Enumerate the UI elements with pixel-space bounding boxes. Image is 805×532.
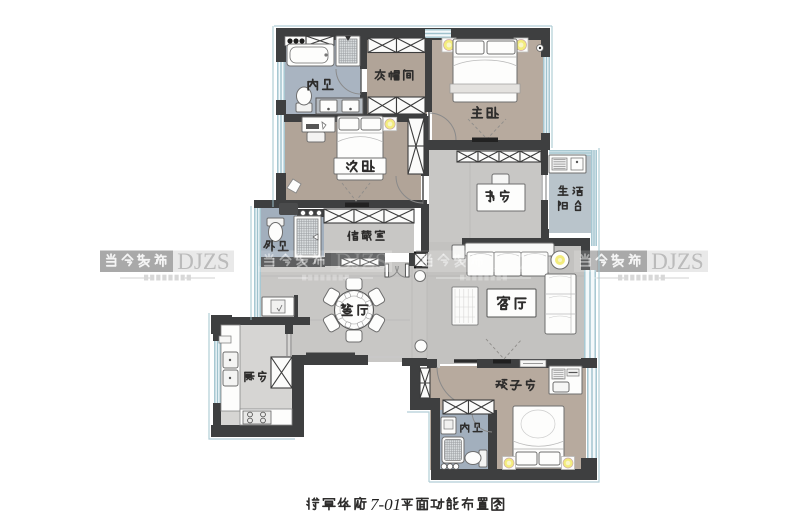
svg-text:DJZS: DJZS: [651, 249, 703, 274]
svg-text:7-01: 7-01: [370, 495, 401, 514]
svg-text:DJZS: DJZS: [177, 249, 229, 274]
svg-text:DJZS: DJZS: [335, 249, 387, 274]
svg-text:DJZS: DJZS: [493, 249, 545, 274]
